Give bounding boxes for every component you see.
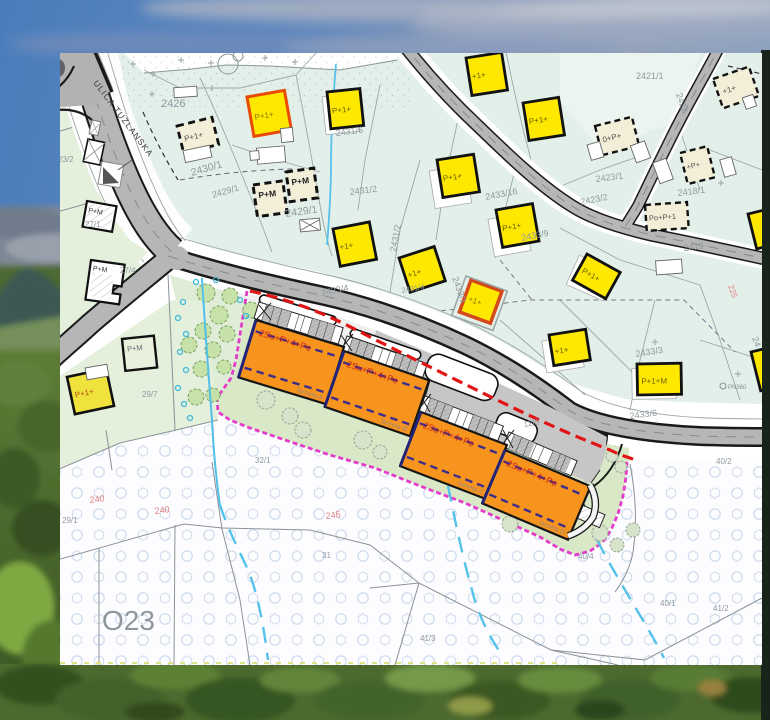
svg-text:PN360: PN360: [728, 385, 747, 391]
svg-text:29/7: 29/7: [142, 390, 158, 399]
svg-text:2421/1: 2421/1: [636, 71, 664, 81]
svg-text:240: 240: [154, 504, 170, 516]
svg-text:245: 245: [325, 509, 341, 521]
svg-text:40/4: 40/4: [578, 552, 594, 561]
svg-text:32/1: 32/1: [255, 456, 271, 465]
svg-text:40/1: 40/1: [660, 599, 676, 608]
svg-text:O23: O23: [102, 605, 155, 636]
svg-text:27/4: 27/4: [120, 266, 136, 275]
svg-text:29/1: 29/1: [62, 516, 78, 525]
svg-text:40/2: 40/2: [716, 457, 732, 466]
svg-text:Po+P+1: Po+P+1: [649, 212, 677, 223]
svg-text:P+M: P+M: [127, 343, 143, 354]
svg-text:41/3: 41/3: [420, 634, 436, 643]
svg-text:P+1+M: P+1+M: [641, 376, 667, 385]
svg-text:240: 240: [89, 493, 105, 505]
svg-text:2426: 2426: [161, 98, 185, 110]
svg-text:23/2: 23/2: [58, 155, 74, 164]
svg-text:27/1: 27/1: [85, 220, 101, 229]
svg-text:31: 31: [322, 551, 331, 560]
svg-text:41/2: 41/2: [713, 604, 729, 613]
